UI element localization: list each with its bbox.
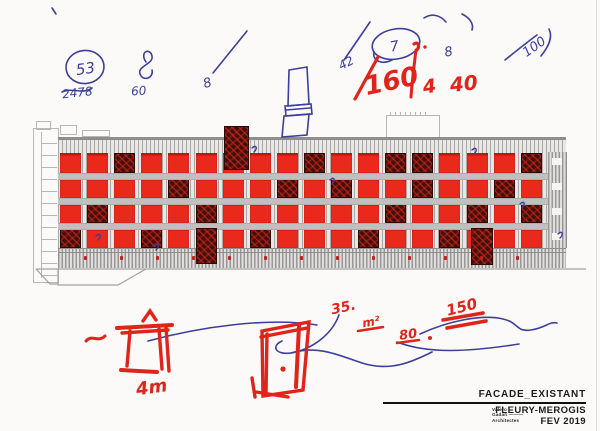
facade-window bbox=[412, 203, 433, 223]
facade-window-marked bbox=[277, 178, 298, 198]
facade-window bbox=[141, 153, 162, 173]
facade-floor-band bbox=[58, 173, 548, 180]
facade-window bbox=[223, 178, 244, 198]
facade-window bbox=[277, 203, 298, 223]
ground-band-mark bbox=[444, 256, 447, 260]
facade-window bbox=[521, 178, 542, 198]
facade-window-marked bbox=[196, 203, 217, 223]
facade-windows-layer bbox=[0, 0, 600, 431]
facade-window bbox=[141, 178, 162, 198]
facade-window-marked-tall bbox=[224, 126, 249, 170]
facade-window bbox=[250, 203, 271, 223]
facade-window bbox=[385, 178, 406, 198]
ground-band-mark bbox=[300, 256, 303, 260]
facade-window bbox=[412, 228, 433, 248]
facade-window bbox=[494, 203, 515, 223]
facade-window bbox=[250, 153, 271, 173]
facade-window bbox=[467, 153, 488, 173]
facade-window bbox=[168, 153, 189, 173]
ground-band-mark bbox=[480, 256, 483, 260]
facade-window bbox=[439, 153, 460, 173]
facade-window bbox=[304, 228, 325, 248]
facade-window-marked bbox=[114, 153, 135, 173]
facade-window bbox=[304, 178, 325, 198]
facade-window-marked bbox=[467, 203, 488, 223]
facade-window bbox=[358, 203, 379, 223]
facade-window bbox=[439, 178, 460, 198]
facade-window-marked bbox=[141, 228, 162, 248]
facade-window bbox=[331, 228, 352, 248]
facade-window bbox=[196, 153, 217, 173]
facade-window-marked bbox=[521, 153, 542, 173]
facade-window-marked bbox=[87, 203, 108, 223]
facade-window bbox=[467, 178, 488, 198]
facade-window bbox=[277, 153, 298, 173]
facade-window bbox=[114, 228, 135, 248]
facade-window bbox=[168, 228, 189, 248]
facade-window bbox=[223, 203, 244, 223]
facade-window bbox=[358, 153, 379, 173]
facade-window bbox=[304, 203, 325, 223]
facade-window bbox=[521, 228, 542, 248]
facade-window bbox=[114, 203, 135, 223]
drawing-title: FACADE_EXISTANT bbox=[479, 389, 586, 400]
facade-window bbox=[87, 153, 108, 173]
facade-window-marked bbox=[494, 178, 515, 198]
title-block-rule bbox=[383, 402, 586, 404]
ground-band-mark bbox=[372, 256, 375, 260]
drawing-date: FEV 2019 bbox=[541, 416, 586, 427]
facade-window-marked bbox=[331, 178, 352, 198]
facade-window-marked bbox=[250, 228, 271, 248]
facade-window bbox=[385, 228, 406, 248]
facade-window bbox=[60, 153, 81, 173]
facade-window bbox=[331, 153, 352, 173]
facade-window bbox=[60, 178, 81, 198]
ground-band-mark bbox=[120, 256, 123, 260]
facade-window-marked bbox=[385, 153, 406, 173]
ground-band-mark bbox=[264, 256, 267, 260]
ground-band-mark bbox=[228, 256, 231, 260]
facade-window-marked bbox=[439, 228, 460, 248]
facade-window bbox=[60, 203, 81, 223]
facade-window bbox=[494, 228, 515, 248]
ground-band-mark bbox=[84, 256, 87, 260]
facade-window-marked-tall bbox=[196, 228, 217, 264]
facade-window bbox=[277, 228, 298, 248]
facade-window-marked bbox=[168, 178, 189, 198]
facade-window-marked bbox=[60, 228, 81, 248]
facade-window bbox=[168, 203, 189, 223]
facade-window bbox=[141, 203, 162, 223]
facade-window bbox=[114, 178, 135, 198]
ground-band-mark bbox=[156, 256, 159, 260]
scan-edge-right bbox=[596, 0, 597, 431]
facade-window bbox=[87, 228, 108, 248]
facade-window bbox=[223, 228, 244, 248]
facade-window bbox=[250, 178, 271, 198]
facade-window bbox=[439, 203, 460, 223]
facade-window-marked bbox=[412, 153, 433, 173]
architect-logo-line3: Architectes bbox=[492, 418, 523, 423]
project-name: FLEURY-MEROGIS bbox=[495, 405, 586, 416]
facade-window-marked bbox=[358, 228, 379, 248]
facade-floor-band bbox=[58, 198, 548, 205]
facade-window bbox=[494, 153, 515, 173]
facade-window-marked bbox=[385, 203, 406, 223]
facade-window bbox=[358, 178, 379, 198]
facade-window-marked bbox=[412, 178, 433, 198]
facade-window-marked bbox=[521, 203, 542, 223]
ground-band-mark bbox=[408, 256, 411, 260]
facade-window bbox=[196, 178, 217, 198]
facade-window-marked bbox=[304, 153, 325, 173]
ground-band-mark bbox=[192, 256, 195, 260]
facade-window bbox=[87, 178, 108, 198]
scanned-drawing-page: 53 2478 60 8 42 7 8 100 bbox=[0, 0, 600, 431]
ground-band-mark bbox=[516, 256, 519, 260]
ground-band-mark bbox=[336, 256, 339, 260]
facade-window bbox=[331, 203, 352, 223]
